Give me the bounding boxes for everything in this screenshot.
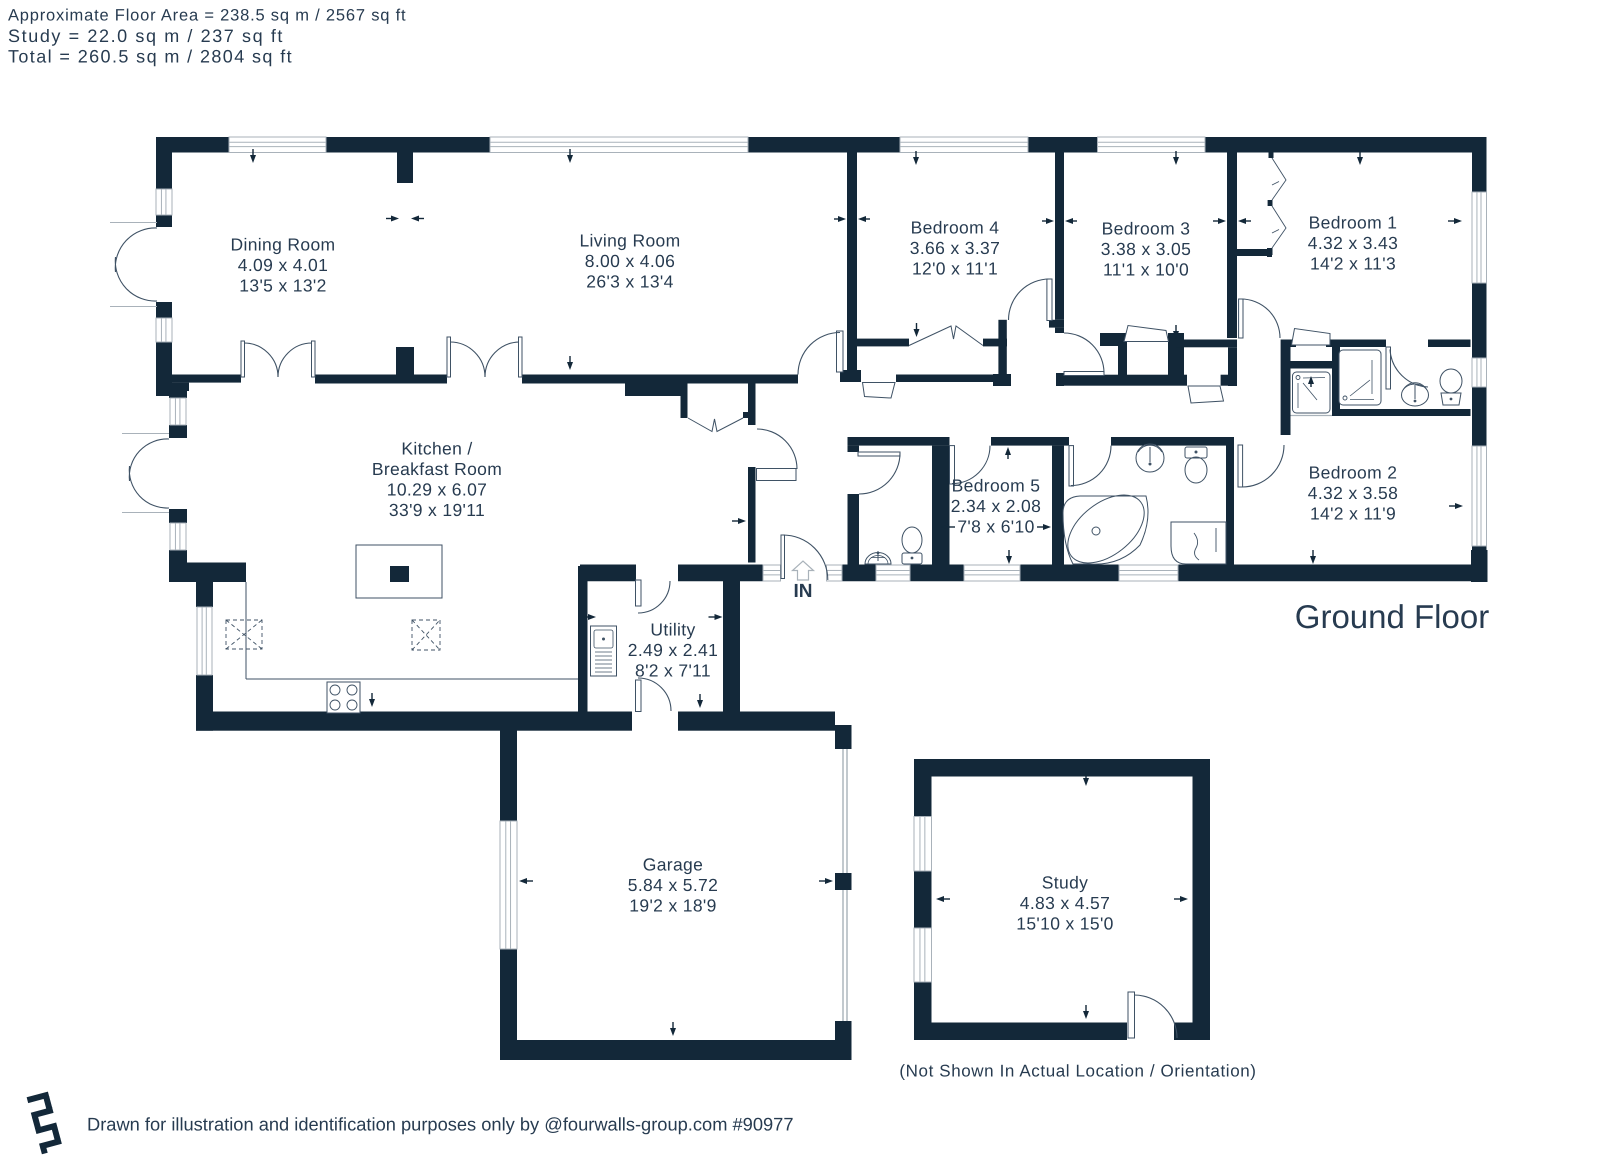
svg-text:(Not Shown In Actual Location: (Not Shown In Actual Location / Orientat… [899, 1062, 1256, 1081]
svg-text:14'2 x 11'9: 14'2 x 11'9 [1310, 504, 1396, 524]
svg-text:Kitchen /: Kitchen / [401, 438, 472, 458]
svg-text:8.00 x 4.06: 8.00 x 4.06 [585, 251, 675, 271]
svg-text:2.49 x 2.41: 2.49 x 2.41 [628, 640, 718, 660]
svg-text:15'10 x 15'0: 15'10 x 15'0 [1016, 914, 1114, 934]
svg-text:12'0 x 11'1: 12'0 x 11'1 [912, 259, 998, 279]
svg-text:13'5 x 13'2: 13'5 x 13'2 [239, 276, 326, 296]
svg-text:Study = 22.0 sq m / 237 sq ft: Study = 22.0 sq m / 237 sq ft [8, 26, 284, 46]
svg-text:11'1 x 10'0: 11'1 x 10'0 [1103, 260, 1189, 280]
svg-text:14'2 x 11'3: 14'2 x 11'3 [1310, 254, 1396, 274]
svg-text:Breakfast Room: Breakfast Room [372, 459, 502, 479]
svg-text:Bedroom 5: Bedroom 5 [952, 475, 1041, 495]
svg-text:2.34 x 2.08: 2.34 x 2.08 [951, 496, 1041, 516]
svg-text:3.38 x 3.05: 3.38 x 3.05 [1101, 239, 1191, 259]
svg-text:Bedroom 4: Bedroom 4 [911, 217, 1000, 237]
svg-text:19'2 x 18'9: 19'2 x 18'9 [629, 896, 716, 916]
svg-text:Drawn for illustration and ide: Drawn for illustration and identificatio… [87, 1114, 794, 1135]
svg-text:10.29 x 6.07: 10.29 x 6.07 [387, 480, 488, 500]
svg-text:7'8 x 6'10: 7'8 x 6'10 [957, 517, 1034, 537]
svg-text:33'9 x 19'11: 33'9 x 19'11 [389, 500, 485, 520]
svg-text:4.09 x 4.01: 4.09 x 4.01 [238, 255, 328, 275]
svg-text:Ground Floor: Ground Floor [1295, 598, 1489, 635]
svg-text:Utility: Utility [650, 619, 695, 639]
svg-text:Living Room: Living Room [579, 230, 680, 250]
svg-text:8'2 x 7'11: 8'2 x 7'11 [635, 661, 711, 681]
svg-text:Bedroom 1: Bedroom 1 [1309, 212, 1398, 232]
svg-text:3.66 x 3.37: 3.66 x 3.37 [910, 238, 1000, 258]
svg-text:Garage: Garage [643, 854, 703, 874]
svg-text:Approximate Floor Area = 238.5: Approximate Floor Area = 238.5 sq m / 25… [8, 7, 406, 25]
svg-text:Bedroom 3: Bedroom 3 [1102, 218, 1191, 238]
svg-text:26'3 x 13'4: 26'3 x 13'4 [586, 272, 673, 292]
svg-text:4.83 x 4.57: 4.83 x 4.57 [1020, 893, 1110, 913]
svg-text:IN: IN [794, 581, 813, 602]
svg-text:Total = 260.5 sq m / 2804 sq f: Total = 260.5 sq m / 2804 sq ft [8, 47, 293, 67]
svg-text:4.32 x 3.58: 4.32 x 3.58 [1308, 483, 1398, 503]
svg-text:4.32 x 3.43: 4.32 x 3.43 [1308, 233, 1398, 253]
svg-text:Dining Room: Dining Room [230, 234, 335, 254]
svg-text:Bedroom 2: Bedroom 2 [1309, 462, 1398, 482]
svg-text:5.84 x 5.72: 5.84 x 5.72 [628, 875, 718, 895]
svg-text:Study: Study [1042, 872, 1089, 892]
